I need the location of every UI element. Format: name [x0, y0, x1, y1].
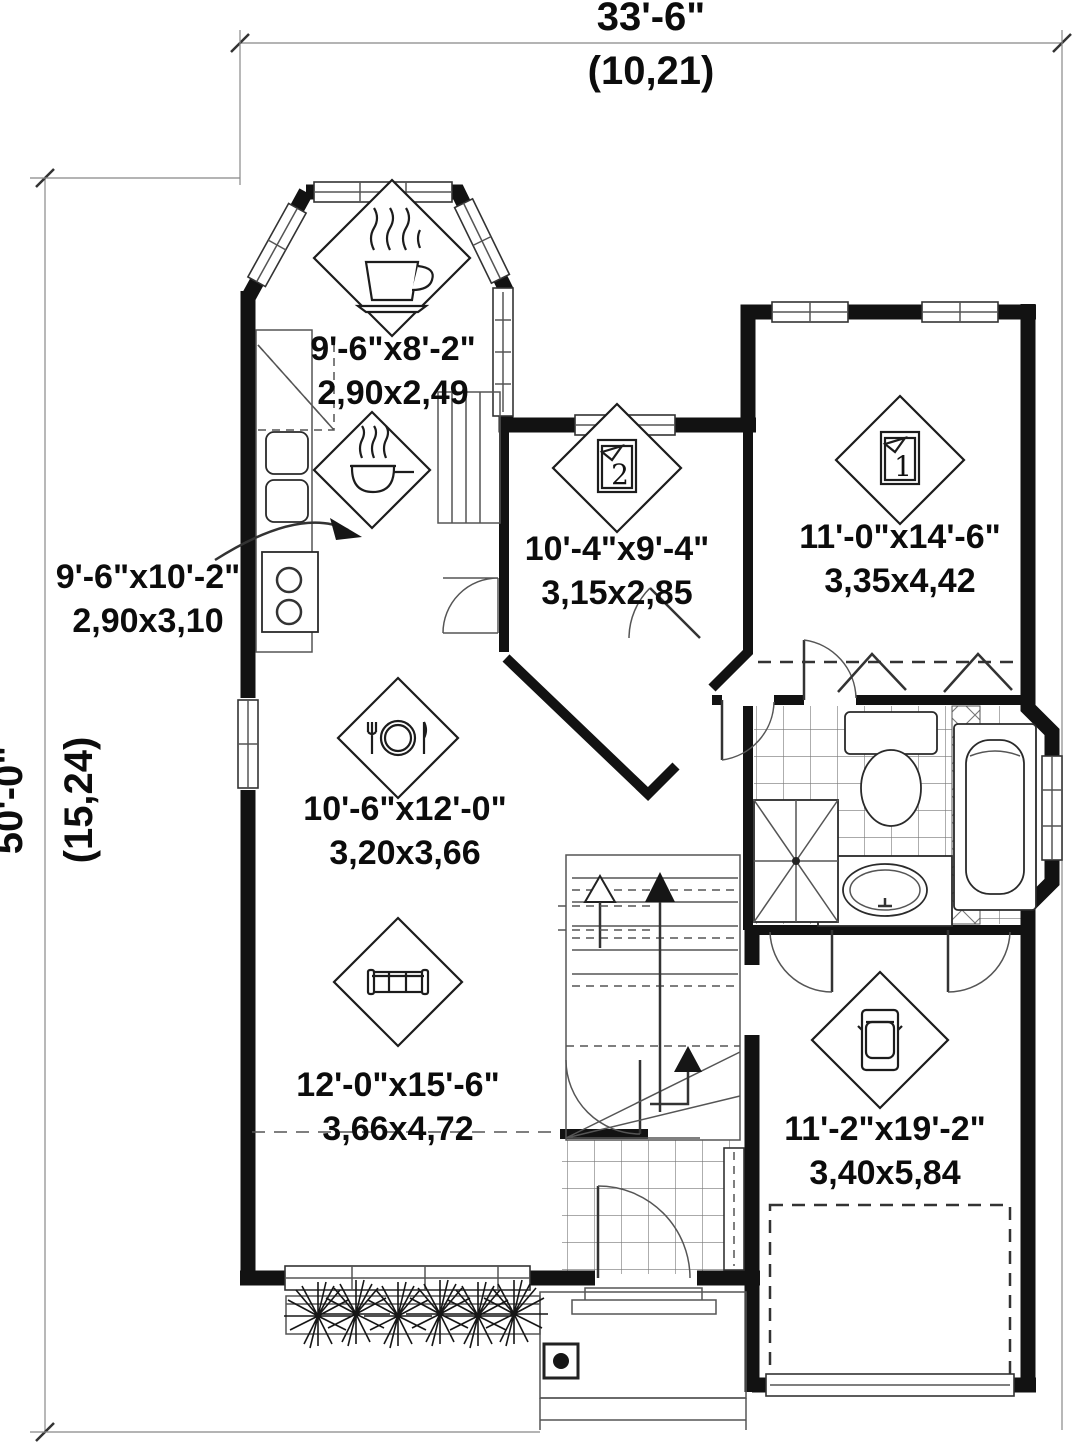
staircase — [558, 855, 740, 1140]
living-size-metric: 3,66x4,72 — [322, 1110, 473, 1148]
width-dimension-imperial: 33'-6" — [597, 0, 706, 39]
garage-door — [766, 1374, 1014, 1396]
bathroom-bay-window — [1042, 756, 1062, 860]
porch-column — [544, 1344, 578, 1378]
garage-size-imperial: 11'-2"x19'-2" — [784, 1110, 986, 1148]
bedroom1-number: 1 — [894, 450, 912, 483]
sofa-icon — [368, 970, 428, 994]
bedroom1-size-imperial: 11'-0"x14'-6" — [799, 518, 1001, 556]
breakfast-size-metric: 2,90x2,49 — [317, 374, 468, 412]
bed-icon: 2 — [598, 440, 636, 492]
bedroom1-icon-diamond: 1 — [836, 396, 964, 524]
breakfast-size-imperial: 9'-6"x8'-2" — [310, 330, 476, 368]
floor-plan-drawing: 33'-6" (10,21) 50'-0" (15,24) — [0, 0, 1080, 1442]
foyer-side-window — [724, 1148, 744, 1270]
bedroom1-closet — [758, 654, 1022, 692]
floor-plan-canvas: 33'-6" (10,21) 50'-0" (15,24) — [0, 0, 1080, 1442]
kitchen-stove — [262, 552, 318, 632]
living-icon-diamond — [334, 918, 462, 1046]
stairs-landing-arrow — [558, 876, 650, 948]
bed-icon: 1 — [881, 432, 919, 484]
bedroom2-number: 2 — [611, 458, 629, 491]
bedroom1-window-right — [922, 302, 998, 322]
car-icon — [858, 1010, 902, 1070]
breakfast-window-left — [248, 203, 306, 286]
stairs-up-arrow — [645, 872, 675, 1112]
dining-size-metric: 3,20x3,66 — [329, 834, 480, 872]
garage-details — [766, 1205, 1014, 1396]
dining-window — [238, 700, 258, 788]
garage-entry-door — [770, 930, 832, 992]
bathtub — [954, 724, 1036, 910]
garage-icon-diamond — [812, 972, 948, 1108]
bedroom2-size-metric: 3,15x2,85 — [541, 574, 692, 612]
bedroom1-window-left — [772, 302, 848, 322]
depth-dimension-imperial: 50'-0" — [0, 746, 31, 855]
kitchen-size-metric: 2,90x3,10 — [72, 602, 223, 640]
kitchen-size-imperial: 9'-6"x10'-2" — [56, 558, 241, 596]
bedroom2-size-imperial: 10'-4"x9'-4" — [525, 530, 710, 568]
garage-side-door — [948, 930, 1010, 992]
kitchen-cabinets — [438, 392, 500, 633]
kitchen-sink — [266, 432, 308, 522]
dining-size-imperial: 10'-6"x12'-0" — [303, 790, 506, 828]
breakfast-side-window — [493, 288, 513, 416]
porch — [540, 1288, 746, 1430]
corner-shower — [754, 800, 838, 922]
depth-dimension-metric: (15,24) — [57, 737, 101, 864]
foyer-floor-tiles — [562, 1140, 742, 1274]
breakfast-window-right — [455, 199, 510, 283]
bedroom1-size-metric: 3,35x4,42 — [824, 562, 975, 600]
dining-icon-diamond — [338, 678, 458, 798]
breakfast-icon-diamond — [314, 180, 470, 336]
bedroom1-door — [804, 640, 856, 700]
width-dimension-metric: (10,21) — [588, 49, 715, 93]
living-size-imperial: 12'-0"x15'-6" — [296, 1066, 499, 1104]
garage-size-metric: 3,40x5,84 — [809, 1154, 960, 1192]
